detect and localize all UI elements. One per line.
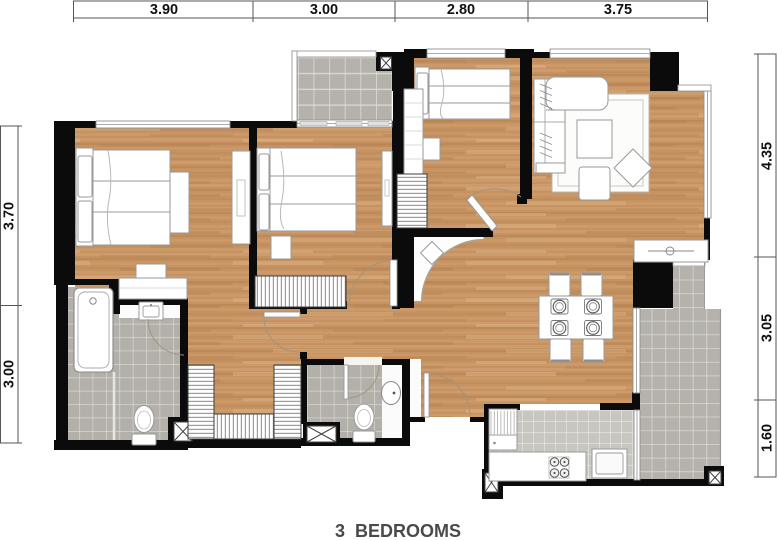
svg-text:3.70: 3.70 bbox=[2, 202, 18, 230]
svg-text:3 BEDROOMS: 3 BEDROOMS bbox=[335, 521, 461, 540]
svg-text:3.00: 3.00 bbox=[2, 360, 18, 388]
svg-text:3.90: 3.90 bbox=[150, 2, 178, 18]
svg-text:3.75: 3.75 bbox=[604, 2, 632, 18]
svg-text:2.80: 2.80 bbox=[447, 2, 475, 18]
svg-text:3.05: 3.05 bbox=[760, 314, 776, 342]
svg-text:1.60: 1.60 bbox=[760, 424, 776, 452]
svg-text:4.35: 4.35 bbox=[760, 142, 776, 170]
svg-text:3.00: 3.00 bbox=[310, 2, 338, 18]
